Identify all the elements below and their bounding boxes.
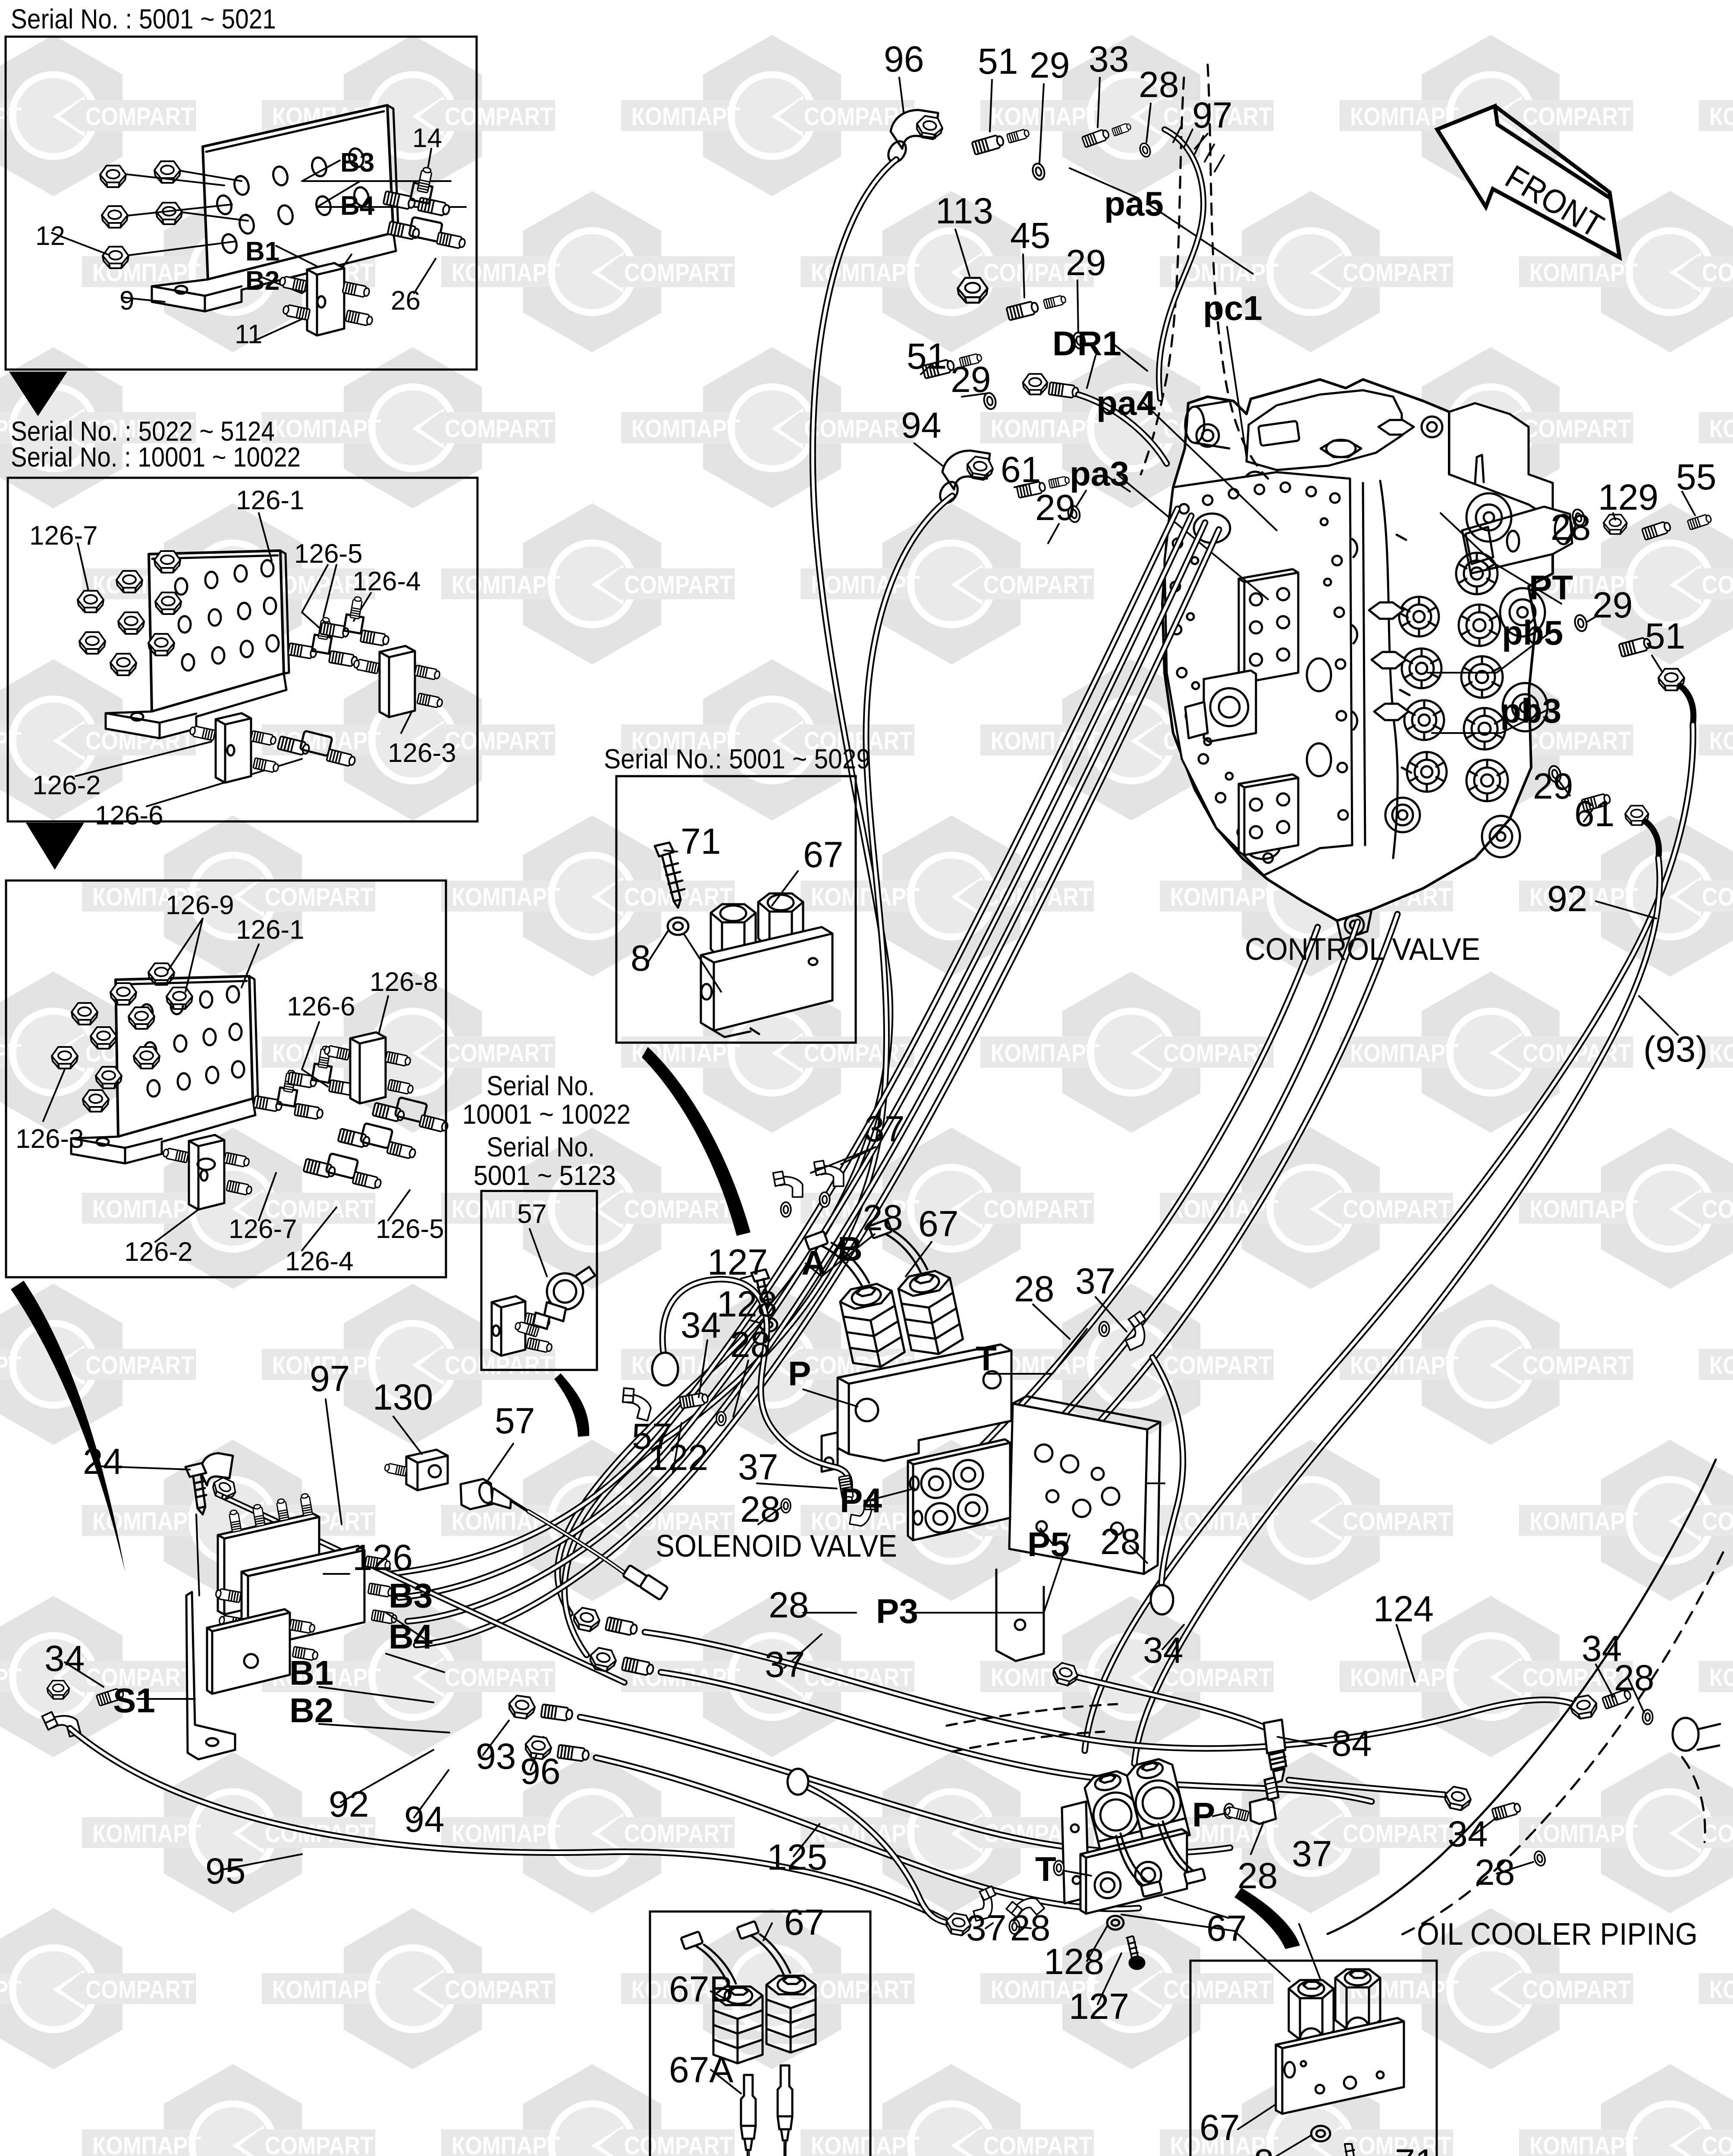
svg-text:SOLENOID VALVE: SOLENOID VALVE: [656, 1529, 897, 1564]
svg-text:11: 11: [235, 320, 262, 349]
svg-text:126-3: 126-3: [388, 738, 456, 768]
svg-text:37: 37: [1075, 1261, 1115, 1301]
svg-text:126-5: 126-5: [294, 539, 363, 569]
svg-text:51: 51: [907, 336, 947, 376]
svg-text:OIL COOLER PIPING: OIL COOLER PIPING: [1417, 1917, 1698, 1952]
svg-text:pa3: pa3: [1070, 454, 1129, 493]
svg-text:10001 ~ 10022: 10001 ~ 10022: [462, 1099, 631, 1130]
svg-text:B2: B2: [289, 1691, 333, 1730]
svg-text:28: 28: [769, 1585, 809, 1625]
svg-text:34: 34: [681, 1305, 721, 1345]
svg-text:DR1: DR1: [1052, 324, 1121, 363]
svg-text:95: 95: [205, 1851, 245, 1891]
svg-text:55: 55: [1676, 457, 1716, 497]
svg-text:51: 51: [1645, 616, 1685, 656]
svg-text:126-7: 126-7: [229, 1214, 297, 1244]
svg-text:Serial No. : 10001 ~ 10022: Serial No. : 10001 ~ 10022: [11, 442, 301, 473]
svg-text:33: 33: [1089, 39, 1129, 79]
svg-text:37: 37: [765, 1644, 805, 1685]
svg-text:57: 57: [517, 1199, 547, 1229]
svg-text:96: 96: [884, 39, 924, 79]
svg-text:B3: B3: [389, 1576, 433, 1615]
svg-text:pc1: pc1: [1203, 289, 1262, 327]
svg-text:67A: 67A: [669, 2049, 733, 2090]
svg-text:(93): (93): [1643, 1029, 1708, 1069]
svg-text:71: 71: [681, 821, 721, 862]
svg-text:45: 45: [1010, 215, 1050, 256]
svg-text:8: 8: [1254, 2142, 1274, 2156]
svg-text:14: 14: [412, 123, 442, 153]
svg-text:126-6: 126-6: [287, 992, 355, 1022]
svg-text:126-4: 126-4: [285, 1247, 354, 1276]
svg-text:126-1: 126-1: [236, 915, 305, 945]
svg-text:97: 97: [310, 1358, 350, 1399]
svg-text:B3: B3: [340, 148, 374, 178]
svg-text:Serial No.: 5001 ~ 5029: Serial No.: 5001 ~ 5029: [604, 743, 870, 774]
svg-text:29: 29: [1035, 487, 1075, 528]
svg-text:28: 28: [1100, 1521, 1140, 1562]
svg-text:29: 29: [1066, 242, 1106, 283]
svg-text:28: 28: [730, 1324, 770, 1365]
svg-text:97: 97: [1192, 95, 1232, 135]
svg-text:128: 128: [717, 1284, 777, 1324]
svg-text:127: 127: [707, 1242, 768, 1282]
svg-text:T: T: [1035, 1850, 1056, 1888]
svg-text:28: 28: [1614, 1658, 1654, 1698]
svg-text:5001 ~ 5123: 5001 ~ 5123: [474, 1160, 616, 1191]
svg-text:51: 51: [978, 41, 1018, 81]
svg-text:126-5: 126-5: [376, 1214, 444, 1244]
svg-text:67: 67: [918, 1203, 958, 1244]
svg-text:57: 57: [495, 1401, 535, 1441]
svg-text:29: 29: [951, 359, 991, 400]
svg-text:B2: B2: [245, 266, 279, 296]
svg-text:P: P: [788, 1354, 811, 1393]
svg-text:B1: B1: [289, 1654, 333, 1692]
svg-text:67: 67: [1206, 1908, 1246, 1949]
svg-text:PT: PT: [1529, 568, 1573, 607]
svg-text:28: 28: [740, 1489, 780, 1529]
svg-text:28: 28: [1475, 1852, 1515, 1893]
svg-text:67: 67: [784, 1902, 824, 1943]
svg-text:84: 84: [1331, 1723, 1372, 1764]
svg-text:B1: B1: [245, 237, 279, 266]
svg-text:126-6: 126-6: [95, 801, 163, 830]
svg-text:28: 28: [1237, 1855, 1278, 1896]
svg-text:B: B: [838, 1230, 863, 1268]
svg-text:34: 34: [1143, 1630, 1183, 1670]
svg-text:CONTROL VALVE: CONTROL VALVE: [1245, 932, 1480, 967]
svg-text:P: P: [1192, 1796, 1215, 1834]
svg-text:92: 92: [1547, 878, 1587, 919]
svg-text:126-3: 126-3: [16, 1124, 84, 1154]
svg-text:94: 94: [901, 405, 941, 445]
svg-text:126-7: 126-7: [29, 521, 98, 551]
svg-text:Serial No.: Serial No.: [487, 1070, 595, 1101]
svg-text:67: 67: [1199, 2107, 1240, 2148]
svg-text:T: T: [976, 1339, 997, 1378]
svg-text:26: 26: [391, 286, 421, 316]
svg-text:126-8: 126-8: [370, 967, 438, 997]
svg-text:9: 9: [119, 286, 134, 316]
svg-text:124: 124: [1373, 1589, 1434, 1629]
svg-text:P4: P4: [840, 1481, 882, 1520]
svg-text:29: 29: [1533, 766, 1573, 806]
svg-text:37: 37: [738, 1447, 778, 1487]
svg-text:A: A: [801, 1244, 826, 1282]
svg-text:37: 37: [966, 1908, 1006, 1948]
svg-text:28: 28: [1551, 507, 1591, 548]
svg-text:67: 67: [803, 834, 843, 875]
svg-text:pa4: pa4: [1096, 384, 1156, 422]
svg-text:129: 129: [1598, 477, 1658, 517]
svg-text:61: 61: [1574, 793, 1614, 834]
svg-text:28: 28: [863, 1197, 903, 1238]
svg-text:28: 28: [1014, 1269, 1054, 1309]
svg-text:B4: B4: [389, 1617, 433, 1656]
svg-text:93: 93: [476, 1736, 516, 1777]
svg-text:113: 113: [936, 191, 993, 231]
svg-text:34: 34: [44, 1638, 85, 1679]
svg-text:125: 125: [767, 1837, 827, 1877]
svg-text:pa5: pa5: [1104, 185, 1164, 223]
svg-text:126-4: 126-4: [352, 567, 421, 596]
svg-text:128: 128: [1044, 1941, 1104, 1982]
svg-text:92: 92: [329, 1784, 369, 1824]
svg-text:Serial No.: Serial No.: [487, 1131, 595, 1163]
svg-text:12: 12: [35, 221, 65, 251]
svg-text:S1: S1: [113, 1681, 155, 1720]
svg-text:126: 126: [352, 1537, 413, 1578]
svg-text:130: 130: [373, 1377, 433, 1417]
svg-text:126-2: 126-2: [124, 1237, 193, 1267]
svg-text:24: 24: [83, 1441, 123, 1482]
svg-text:96: 96: [520, 1751, 560, 1792]
svg-text:29: 29: [1592, 585, 1633, 625]
svg-text:Serial No. : 5001 ~ 5021: Serial No. : 5001 ~ 5021: [11, 3, 276, 34]
svg-text:pb5: pb5: [1502, 614, 1563, 652]
svg-text:P3: P3: [876, 1592, 918, 1630]
svg-text:57: 57: [632, 1416, 672, 1457]
svg-text:126-2: 126-2: [32, 771, 101, 800]
svg-text:P5: P5: [1027, 1525, 1070, 1564]
svg-text:8: 8: [631, 938, 651, 978]
svg-text:126-9: 126-9: [166, 890, 234, 920]
svg-text:37: 37: [1292, 1833, 1332, 1874]
svg-text:34: 34: [1447, 1814, 1488, 1854]
svg-text:71: 71: [1395, 2142, 1435, 2156]
svg-text:37: 37: [864, 1109, 904, 1149]
svg-text:67B: 67B: [669, 1969, 733, 2009]
svg-text:61: 61: [1001, 449, 1041, 490]
svg-text:94: 94: [404, 1799, 444, 1839]
svg-text:B4: B4: [340, 191, 375, 221]
svg-text:29: 29: [1030, 45, 1070, 85]
svg-text:28: 28: [1139, 64, 1179, 105]
svg-text:pb3: pb3: [1500, 692, 1561, 730]
svg-text:126-1: 126-1: [236, 486, 305, 515]
svg-text:127: 127: [1069, 1986, 1129, 2027]
